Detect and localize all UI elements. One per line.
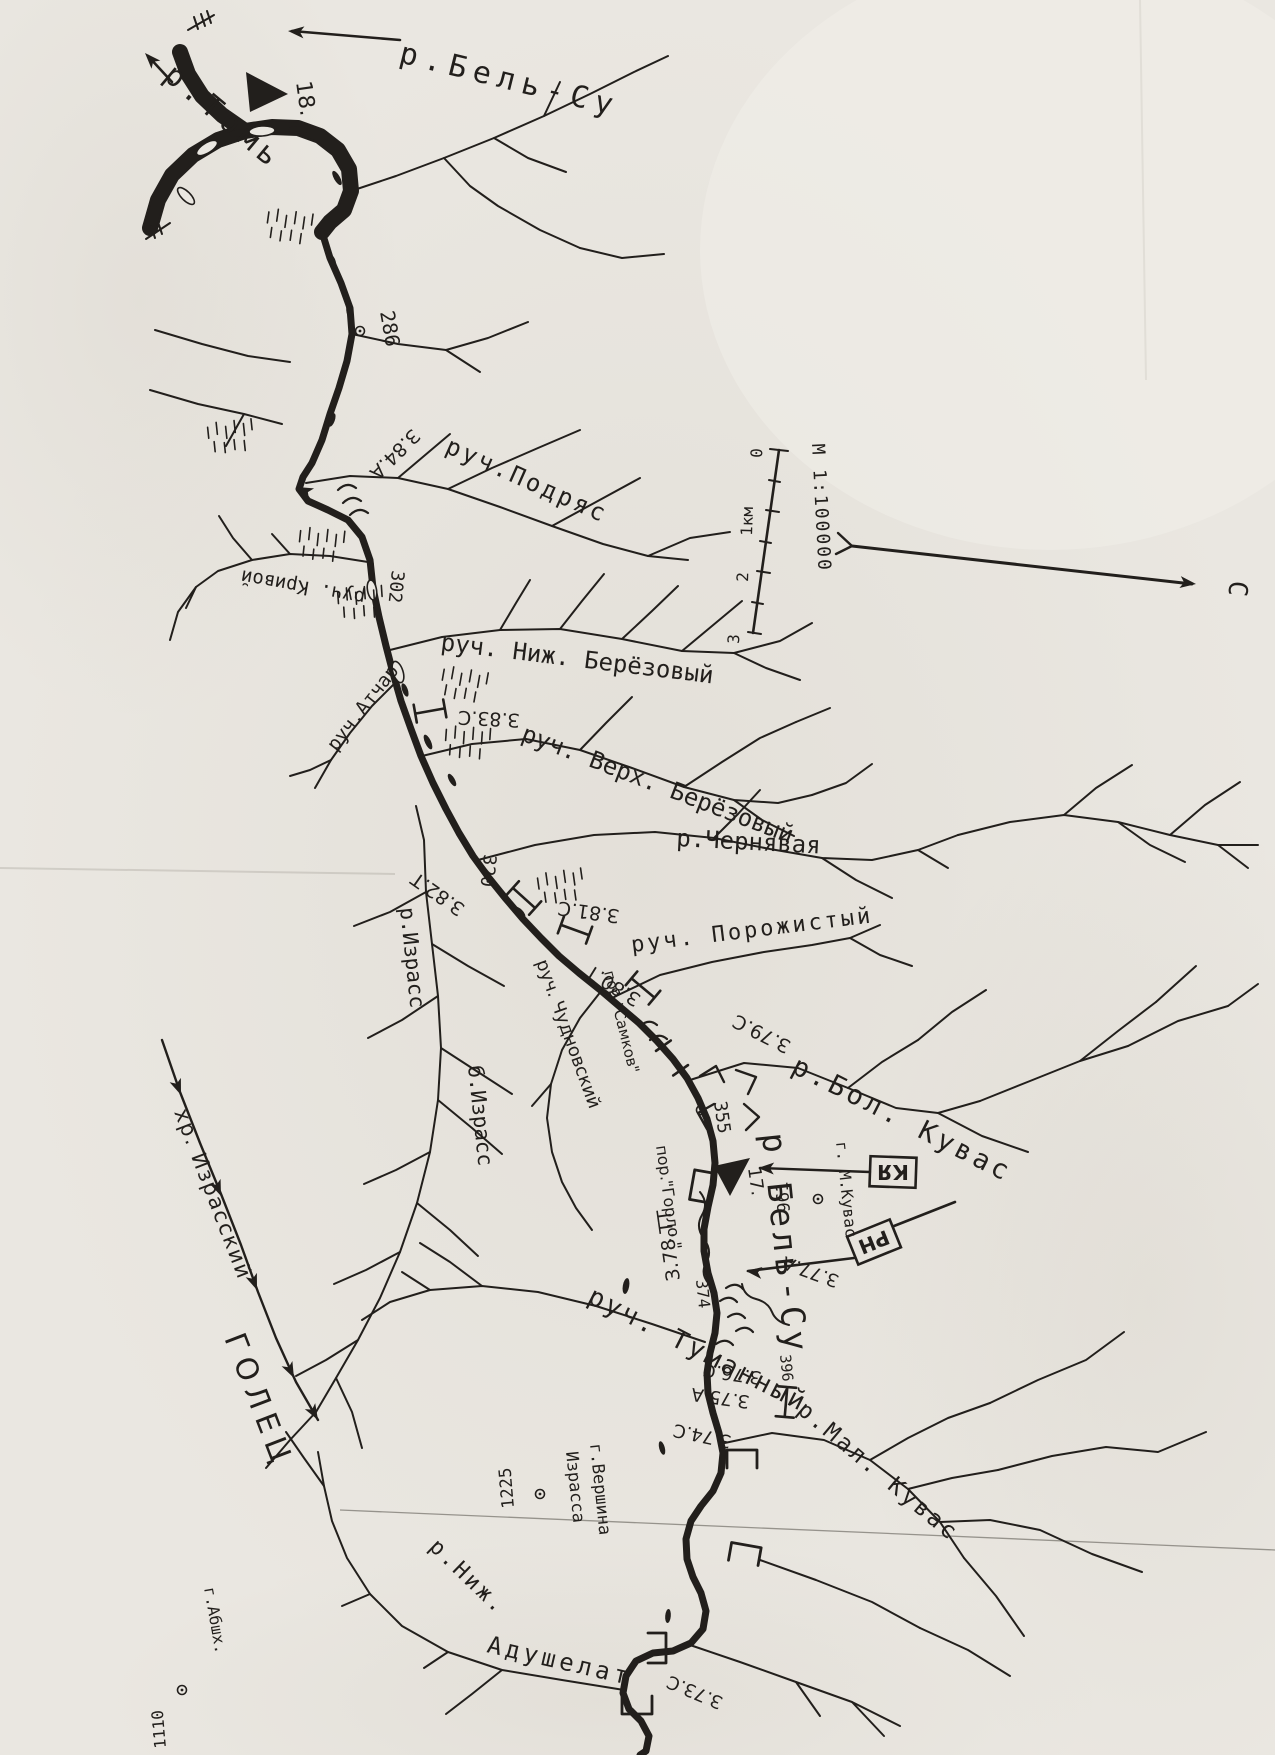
- scale-3-label: 3: [724, 634, 743, 644]
- scale-2-label: 2: [733, 572, 752, 582]
- label-elev-374: 374: [692, 1278, 714, 1309]
- label-elev-1110: 1110: [148, 1709, 170, 1749]
- label-elev-302: 302: [384, 569, 408, 604]
- label-elev-320: 320: [476, 853, 500, 888]
- scale-0-label: 0: [747, 448, 766, 458]
- label-camp-z83: З.83.С: [457, 706, 520, 731]
- scanned-map-page: КЯ РН С 0 1км 2 3 М 1:100000 р.Бель-Су р…: [0, 0, 1275, 1755]
- paper-texture: [0, 0, 1275, 1755]
- label-elev-355: 355: [709, 1100, 734, 1135]
- label-elev-396: 396: [776, 1354, 797, 1383]
- map-canvas: КЯ РН С 0 1км 2 3 М 1:100000 р.Бель-Су р…: [0, 0, 1275, 1755]
- label-elev-1225: 1225: [495, 1467, 518, 1510]
- label-mark-18: 18.: [290, 79, 320, 117]
- box-kya-label: КЯ: [877, 1160, 909, 1184]
- scale-1km-label: 1км: [737, 506, 757, 536]
- north-label: С: [1221, 579, 1252, 598]
